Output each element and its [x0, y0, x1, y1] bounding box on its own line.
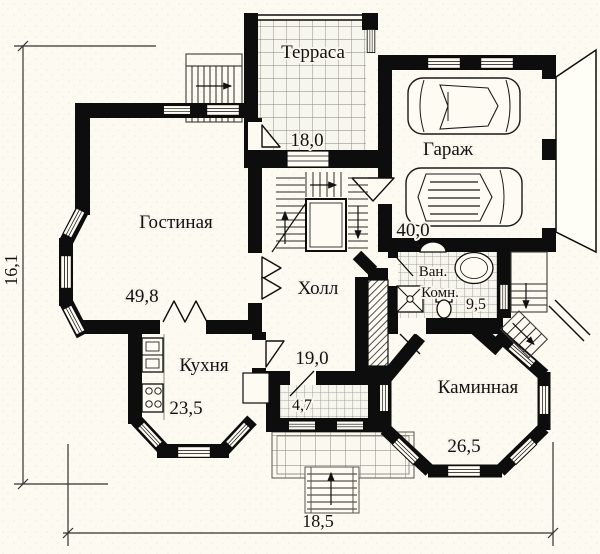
- under-stair-closet: [243, 373, 269, 403]
- bathroom-area: 9,5: [466, 296, 486, 313]
- terrace-french-door: [287, 151, 329, 167]
- kitchen-area: 23,5: [169, 398, 202, 419]
- porch-steps: [305, 467, 359, 513]
- garage-area: 40,0: [396, 220, 429, 241]
- garage-driveway: [556, 50, 596, 252]
- car-top-view: [408, 78, 520, 134]
- window: [448, 466, 481, 477]
- height-dimension: 16,1: [1, 254, 21, 286]
- garage-label: Гараж: [423, 139, 474, 160]
- window: [336, 421, 363, 430]
- bathroom-label-2: Комн.: [421, 285, 459, 301]
- stairwell: [306, 199, 346, 251]
- floor-plan-drawing: Терраса 18,0 Гараж 40,0 Гостиная 49,8 Хо…: [0, 0, 600, 554]
- window: [481, 58, 514, 69]
- fireplace-room-area: 26,5: [447, 436, 480, 457]
- window: [367, 29, 375, 52]
- car-top-view: [406, 168, 522, 226]
- wall-segment: [542, 139, 556, 160]
- closet-hatched: [368, 280, 388, 366]
- window: [207, 105, 240, 116]
- wall-segment: [128, 332, 142, 424]
- window: [288, 421, 315, 430]
- width-dimension: 18,5: [302, 511, 334, 531]
- bathroom-label-1: Ван.: [419, 264, 447, 280]
- wall-segment: [362, 13, 378, 30]
- fireplace-niche: [380, 384, 389, 411]
- window: [178, 447, 211, 458]
- floor-plan: Терраса 18,0 Гараж 40,0 Гостиная 49,8 Хо…: [0, 0, 600, 554]
- kitchen-label: Кухня: [179, 355, 228, 376]
- kitchen-sink: [142, 338, 163, 372]
- living-area: 49,8: [125, 286, 158, 307]
- window: [163, 106, 190, 115]
- window: [539, 386, 549, 415]
- fireplace-room-label: Каминная: [438, 377, 519, 398]
- living-label: Гостиная: [139, 212, 213, 233]
- terrace-label: Терраса: [281, 42, 345, 63]
- terrace-area: 18,0: [290, 130, 323, 151]
- stove: [142, 384, 163, 412]
- vestibule-area: 4,7: [292, 397, 312, 414]
- wall-segment: [355, 277, 368, 380]
- hall-label: Холл: [298, 278, 339, 299]
- window: [61, 256, 72, 289]
- wall-segment: [378, 55, 392, 252]
- wall-segment: [542, 55, 556, 79]
- window: [500, 284, 508, 309]
- hall-area: 19,0: [295, 348, 328, 369]
- wall-segment: [75, 103, 90, 215]
- window: [428, 58, 461, 69]
- wall-segment: [378, 55, 556, 70]
